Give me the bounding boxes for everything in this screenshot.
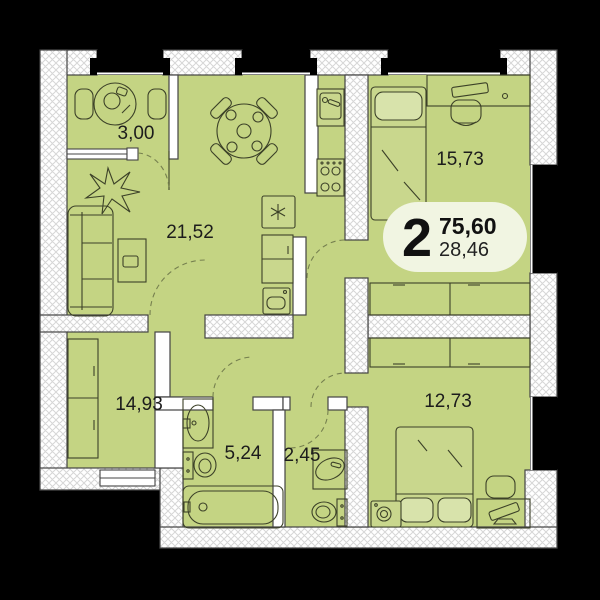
badge-secondary-area: 28,46 [439,239,489,261]
window-balcony [97,50,163,75]
wall-corridor-upper [345,278,368,373]
wall-balcony-vertical [169,75,178,159]
kitchen-cabinet [262,235,293,283]
badge-total-area: 75,60 [439,213,497,239]
label-bathroom: 5,24 [225,443,262,464]
kitchen-sink [317,89,344,126]
floor-plan: 3,00 21,52 15,73 14,93 5,24 2,45 12,73 2… [0,0,600,600]
pillow [400,498,433,522]
label-room-left: 14,93 [115,394,163,415]
pillow [438,498,471,522]
wall-wc-top-b [328,397,347,410]
wall-right-upper [530,50,557,165]
window-right-lower [530,397,557,470]
wall-room-left-right [155,332,170,397]
label-bedroom-top: 15,73 [436,149,484,170]
single-bed [371,87,426,220]
double-bed [396,427,473,527]
label-wc: 2,45 [284,445,321,466]
label-bedroom-bottom: 12,73 [424,391,472,412]
window-room-left [100,470,155,486]
badge-room-count: 2 [402,208,432,268]
wall-bottom [160,527,557,548]
bedroom-top-door-gap [345,240,368,278]
wall-corridor-lower [345,407,368,527]
washing-machine [371,501,401,527]
wall-mid-horizontal [205,315,293,338]
hallway-floor [170,332,345,397]
window-right-upper [530,165,557,273]
label-living-room: 21,52 [166,222,214,243]
window-balcony-inner [67,148,138,160]
window-bedroom-top [388,50,500,75]
floor-plan-canvas: 3,00 21,52 15,73 14,93 5,24 2,45 12,73 2… [0,0,600,600]
wall-bathroom-top-b [253,397,283,410]
info-badge: 2 75,60 28,46 [383,202,527,272]
pillow [375,92,422,120]
wall-between-bedrooms [368,315,530,338]
wall-wc-top-a [283,397,290,410]
bedroom-bottom-door-gap [345,373,368,407]
hall-door-gap [148,315,205,332]
wall-kitchen-bedroom [345,75,368,240]
fridge [262,196,295,228]
wall-living-room-left [40,315,148,332]
wall-left [40,50,67,490]
wall-top-pier-3 [310,50,388,75]
label-balcony: 3,00 [118,123,155,144]
door-jamb [127,148,138,160]
wall-top-pier-2 [163,50,242,75]
wall-kitchen-lower [293,237,306,315]
window-living [242,50,310,75]
kitchen-appliance [263,288,290,314]
stove [317,159,344,196]
wall-right-mid [530,273,557,397]
wall-kitchen-partition [305,75,318,193]
